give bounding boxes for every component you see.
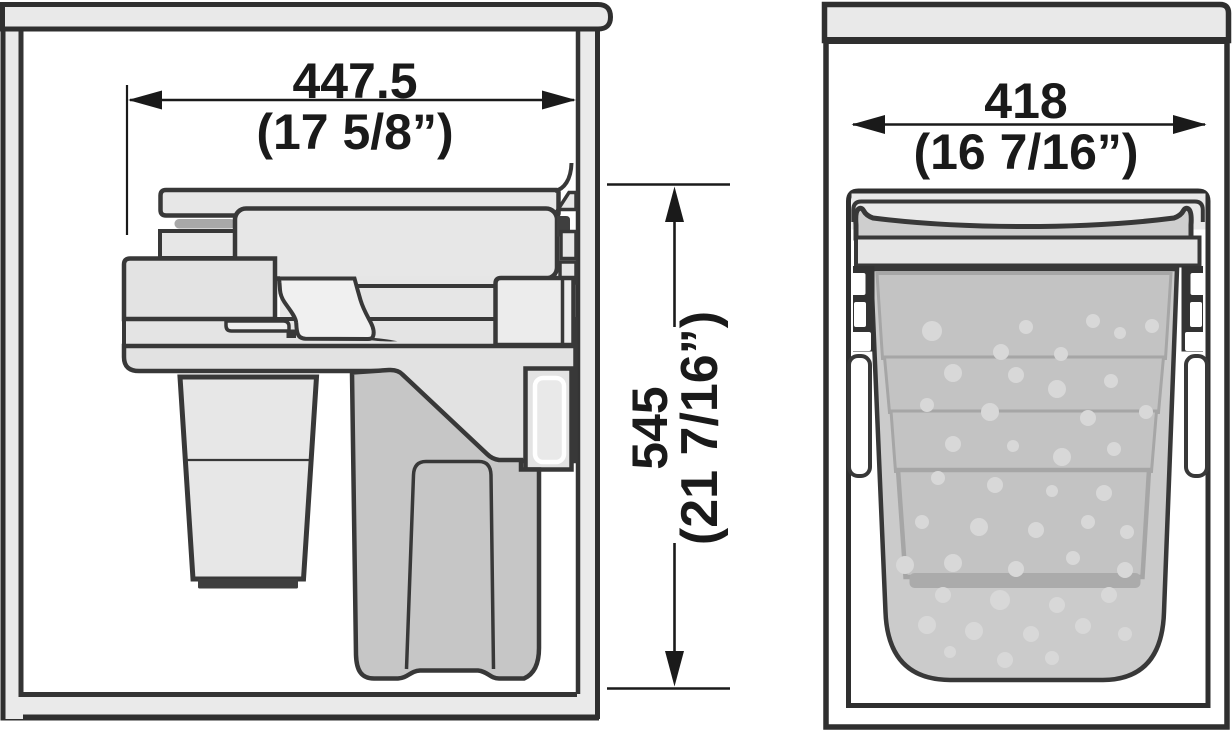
svg-text:(16 7/16”): (16 7/16”) bbox=[913, 124, 1138, 180]
svg-text:447.5: 447.5 bbox=[292, 53, 417, 109]
svg-text:418: 418 bbox=[984, 73, 1067, 129]
svg-text:545: 545 bbox=[622, 386, 678, 469]
svg-text:(17 5/8”): (17 5/8”) bbox=[256, 104, 453, 160]
svg-text:(21 7/16”): (21 7/16”) bbox=[671, 311, 729, 545]
